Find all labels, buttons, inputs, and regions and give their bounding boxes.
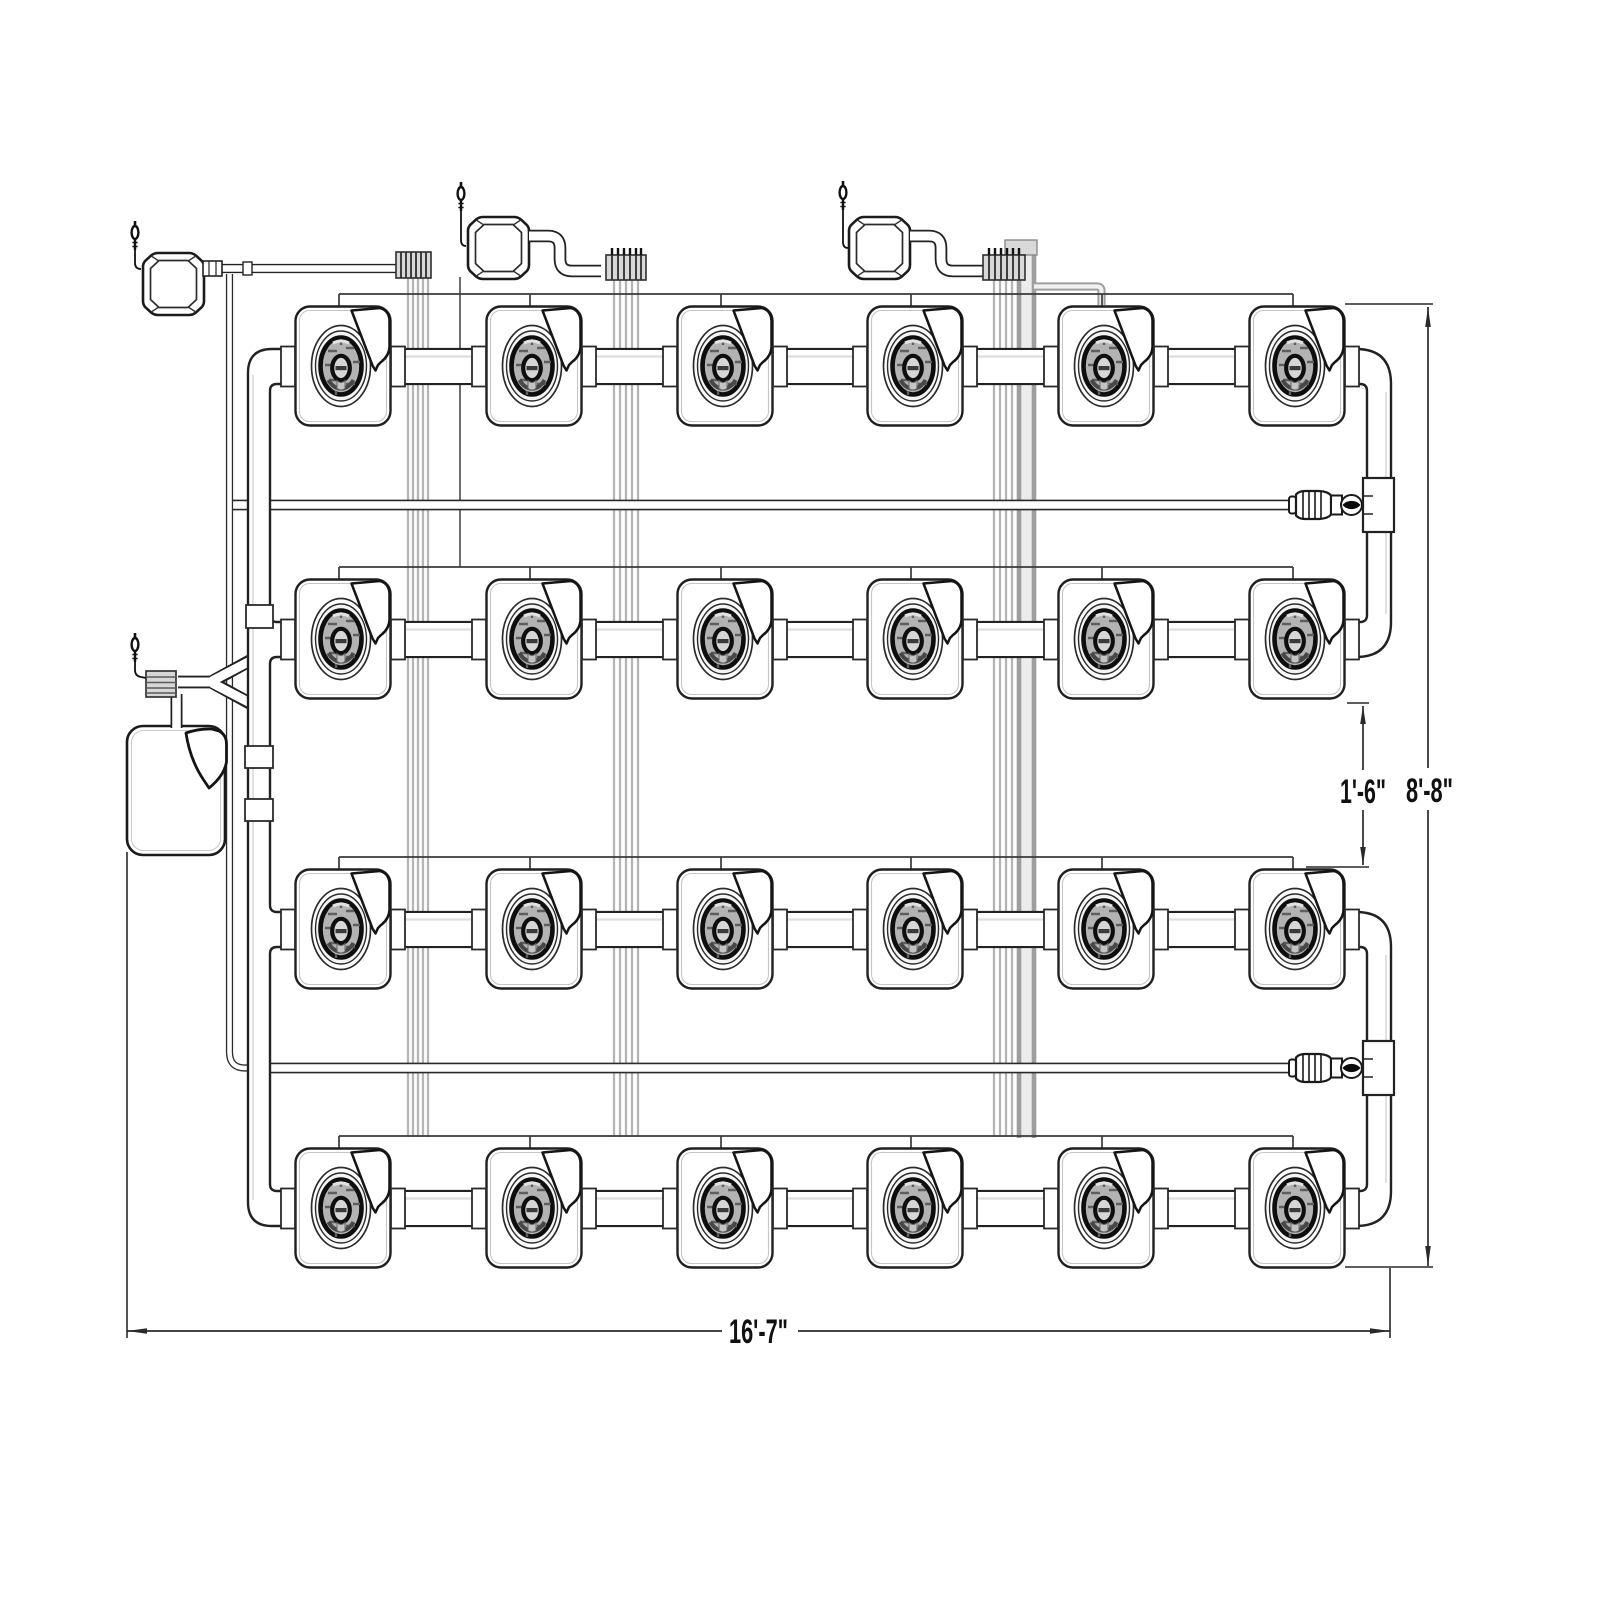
svg-text:1'-6": 1'-6" <box>1340 773 1386 811</box>
svg-text:16'-7": 16'-7" <box>729 1313 788 1351</box>
svg-text:8'-8": 8'-8" <box>1406 772 1453 810</box>
